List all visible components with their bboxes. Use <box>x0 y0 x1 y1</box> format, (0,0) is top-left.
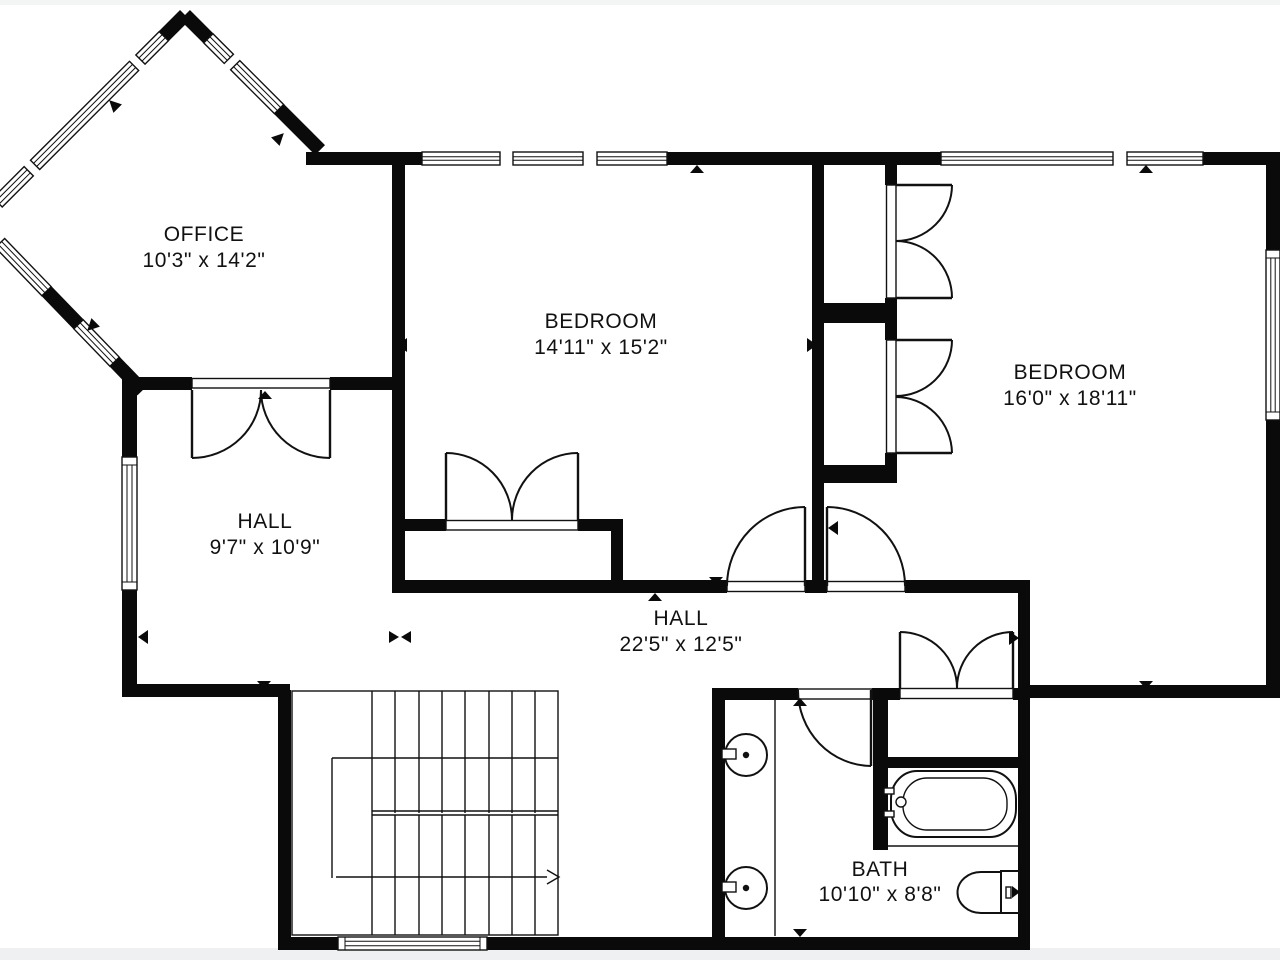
window-bedroom2-right <box>1266 250 1280 420</box>
window-bedroom2-top <box>941 152 1203 165</box>
bedroom2-closet2-opening <box>887 340 897 453</box>
floor-plan-page: OFFICE 10'3" x 14'2" BEDROOM 14'11" x 15… <box>0 0 1280 960</box>
office-door-opening <box>192 379 330 389</box>
floor-plan: OFFICE 10'3" x 14'2" BEDROOM 14'11" x 15… <box>0 0 1280 960</box>
bedroom2-door-opening <box>827 582 905 592</box>
window-stair-bottom <box>338 937 487 950</box>
bedroom1-label: BEDROOM <box>545 310 658 333</box>
office-label: OFFICE <box>164 223 245 246</box>
bath-dims: 10'10" x 8'8" <box>819 883 942 906</box>
window-bedroom1-top <box>422 152 667 165</box>
hall-main-dims: 22'5" x 12'5" <box>620 633 743 656</box>
bath-door-opening <box>798 689 872 699</box>
bathtub-icon <box>884 771 1016 837</box>
bedroom2-label: BEDROOM <box>1014 361 1127 384</box>
hall-upper-label: HALL <box>238 510 293 533</box>
bedroom2-dims: 16'0" x 18'11" <box>1003 387 1137 410</box>
bedroom1-door-opening <box>727 582 805 592</box>
hall-closet-opening <box>900 689 1013 699</box>
bath-label: BATH <box>852 858 909 881</box>
hall-main-label: HALL <box>654 607 709 630</box>
window-hall-left <box>122 457 137 590</box>
bedroom2-closet1-opening <box>887 185 897 298</box>
hall-upper-dims: 9'7" x 10'9" <box>210 536 321 559</box>
bedroom1-dims: 14'11" x 15'2" <box>534 336 668 359</box>
office-dims: 10'3" x 14'2" <box>143 249 266 272</box>
bedroom1-closet-opening <box>446 521 578 531</box>
page-edge-top <box>0 0 1280 5</box>
toilet-icon <box>957 871 1020 913</box>
canvas-background <box>0 0 1280 960</box>
